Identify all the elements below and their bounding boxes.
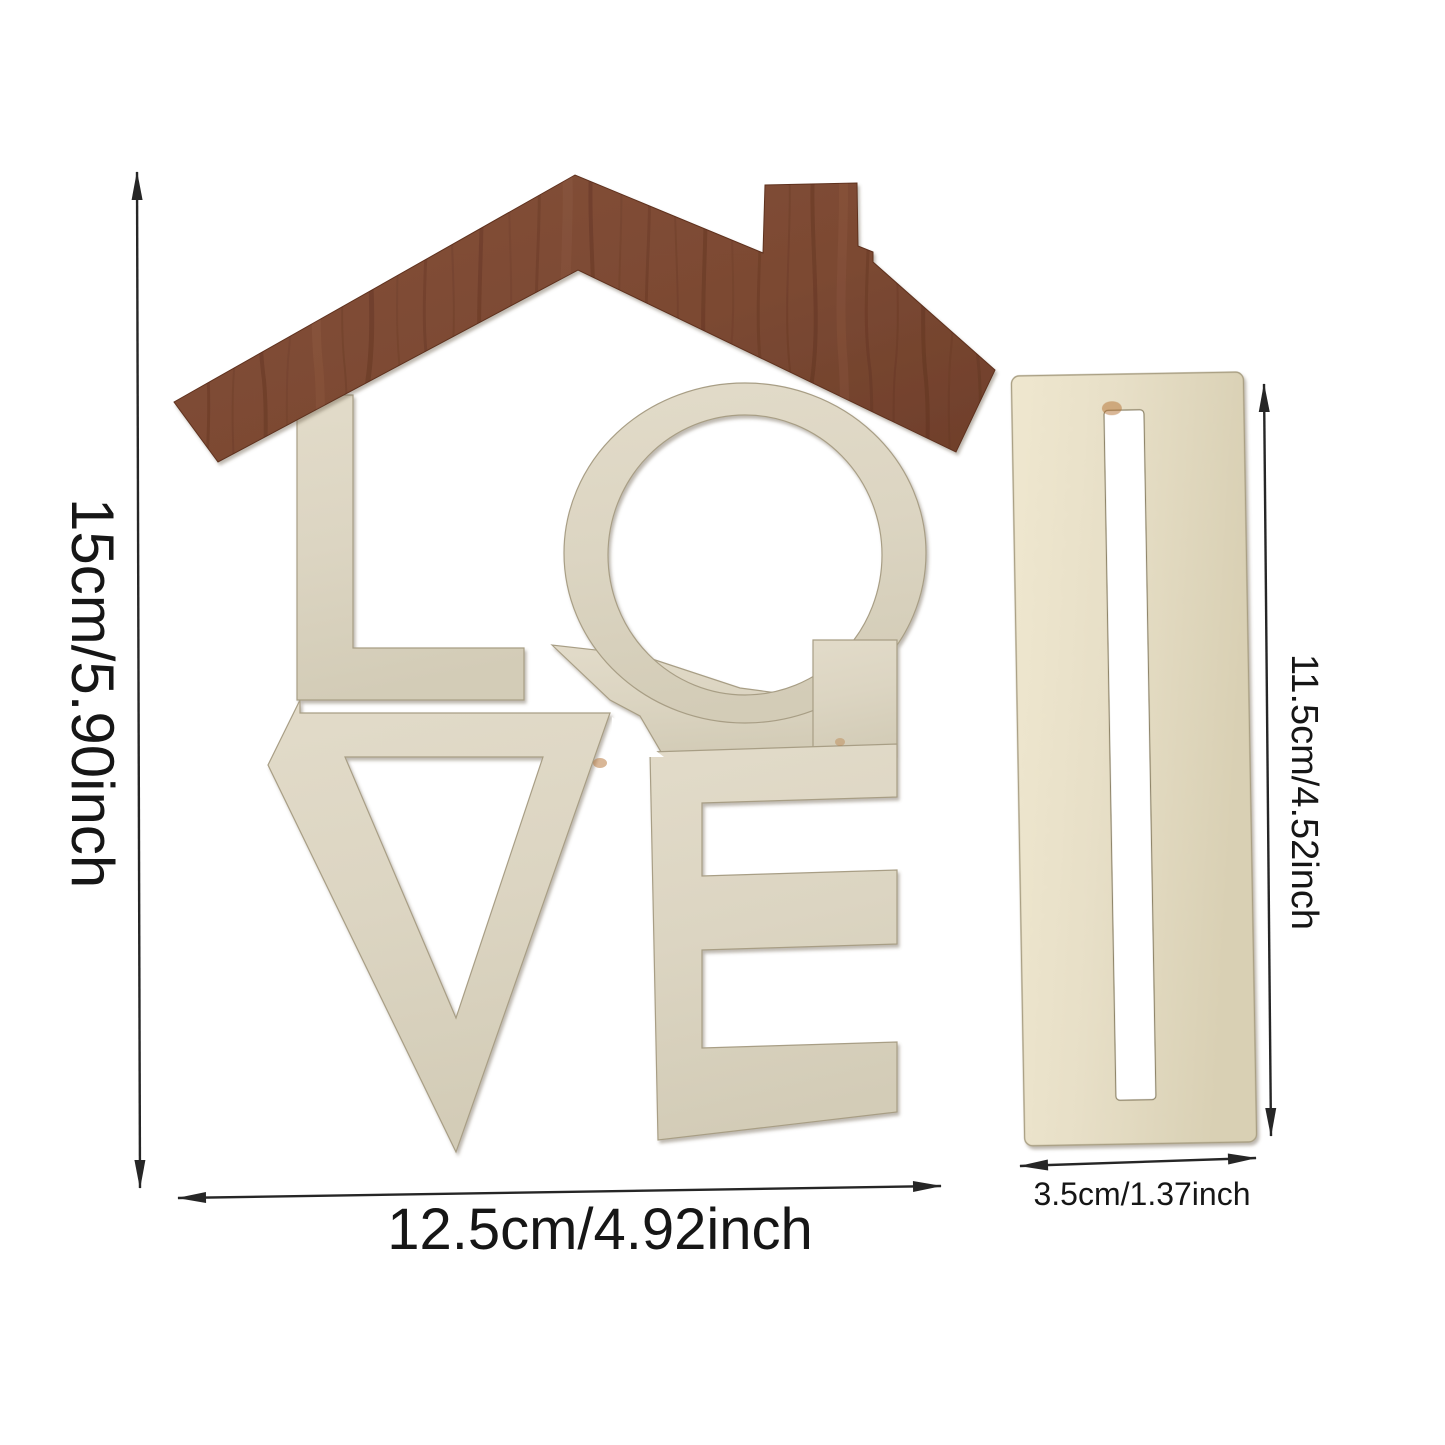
letter-e-shape [650, 744, 897, 1140]
stand-width-dimension-line [1020, 1158, 1256, 1166]
product-dimension-diagram: 15cm/5.90inch 12.5cm/4.92inch 11.5cm/4.5… [0, 0, 1445, 1445]
letter-v-shape [268, 700, 610, 1152]
stand-width-label: 3.5cm/1.37inch [1022, 1176, 1262, 1213]
stand-group [1011, 372, 1256, 1146]
sign-height-label: 15cm/5.90inch [58, 498, 127, 888]
sign-width-label: 12.5cm/4.92inch [250, 1196, 950, 1263]
stand-height-label: 11.5cm/4.52inch [1282, 654, 1325, 930]
roof-shape [174, 175, 995, 462]
burn-mark [835, 738, 845, 746]
sign-height-dimension-line [137, 172, 140, 1188]
letter-o-stem [813, 640, 897, 757]
burn-mark [593, 758, 607, 768]
letter-l-shape [297, 395, 524, 700]
stand-height-dimension-line [1264, 384, 1271, 1136]
